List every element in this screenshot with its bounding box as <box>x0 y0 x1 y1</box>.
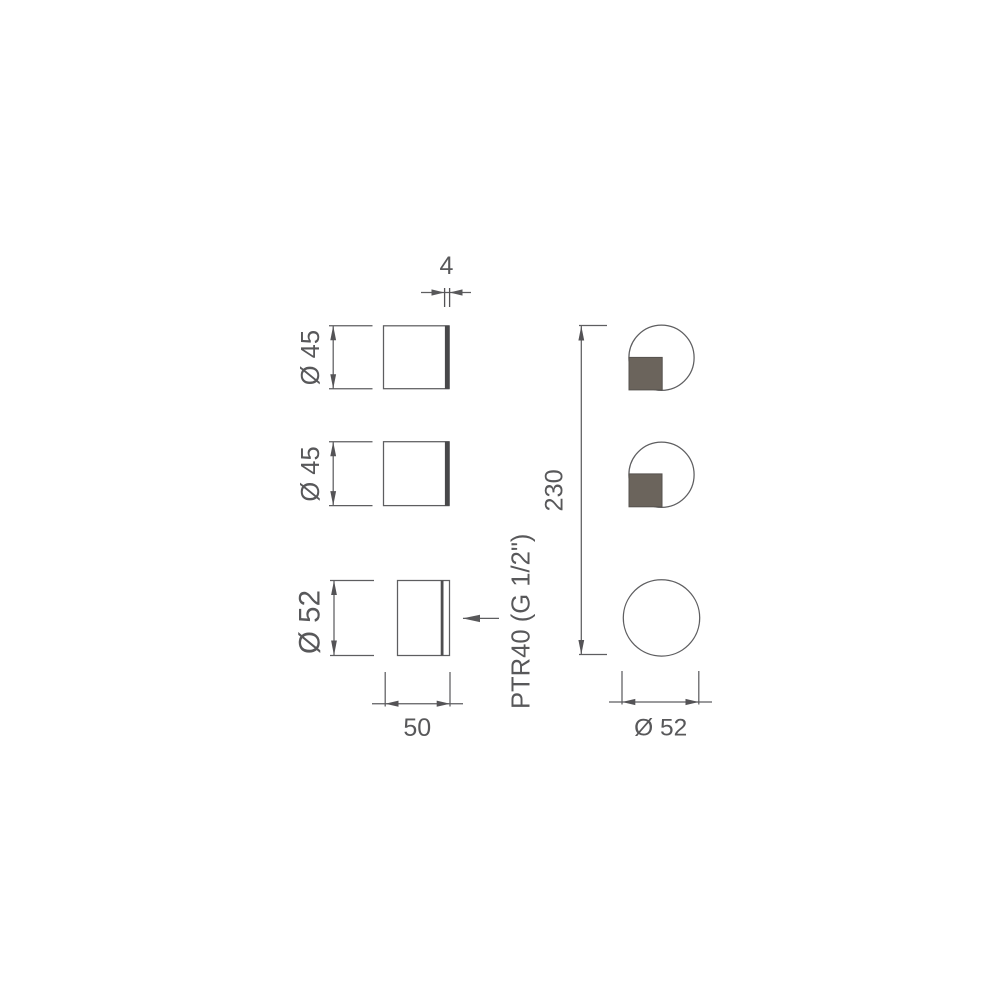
svg-text:Ø 52: Ø 52 <box>294 590 327 654</box>
svg-text:4: 4 <box>440 252 454 280</box>
svg-text:Ø 45: Ø 45 <box>297 330 325 385</box>
svg-text:230: 230 <box>541 469 569 511</box>
svg-text:Ø 45: Ø 45 <box>297 446 325 501</box>
svg-text:Ø 52: Ø 52 <box>634 714 687 741</box>
svg-text:PTR40 (G 1/2"): PTR40 (G 1/2") <box>507 534 535 710</box>
svg-text:50: 50 <box>403 714 431 742</box>
